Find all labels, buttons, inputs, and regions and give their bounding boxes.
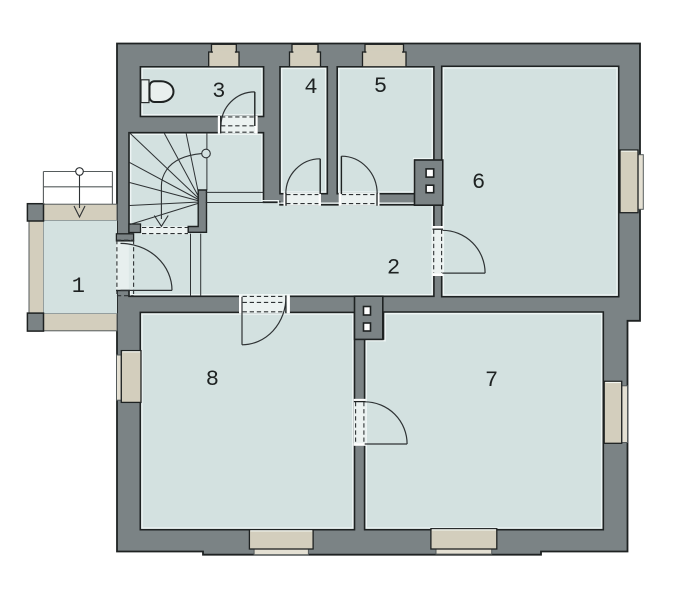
svg-text:8: 8 (206, 367, 219, 392)
svg-text:4: 4 (304, 75, 317, 100)
svg-text:5: 5 (374, 74, 387, 99)
svg-text:7: 7 (485, 368, 498, 393)
svg-text:3: 3 (212, 79, 225, 104)
svg-text:6: 6 (472, 170, 485, 195)
svg-text:1: 1 (72, 274, 85, 299)
svg-text:2: 2 (387, 256, 400, 281)
